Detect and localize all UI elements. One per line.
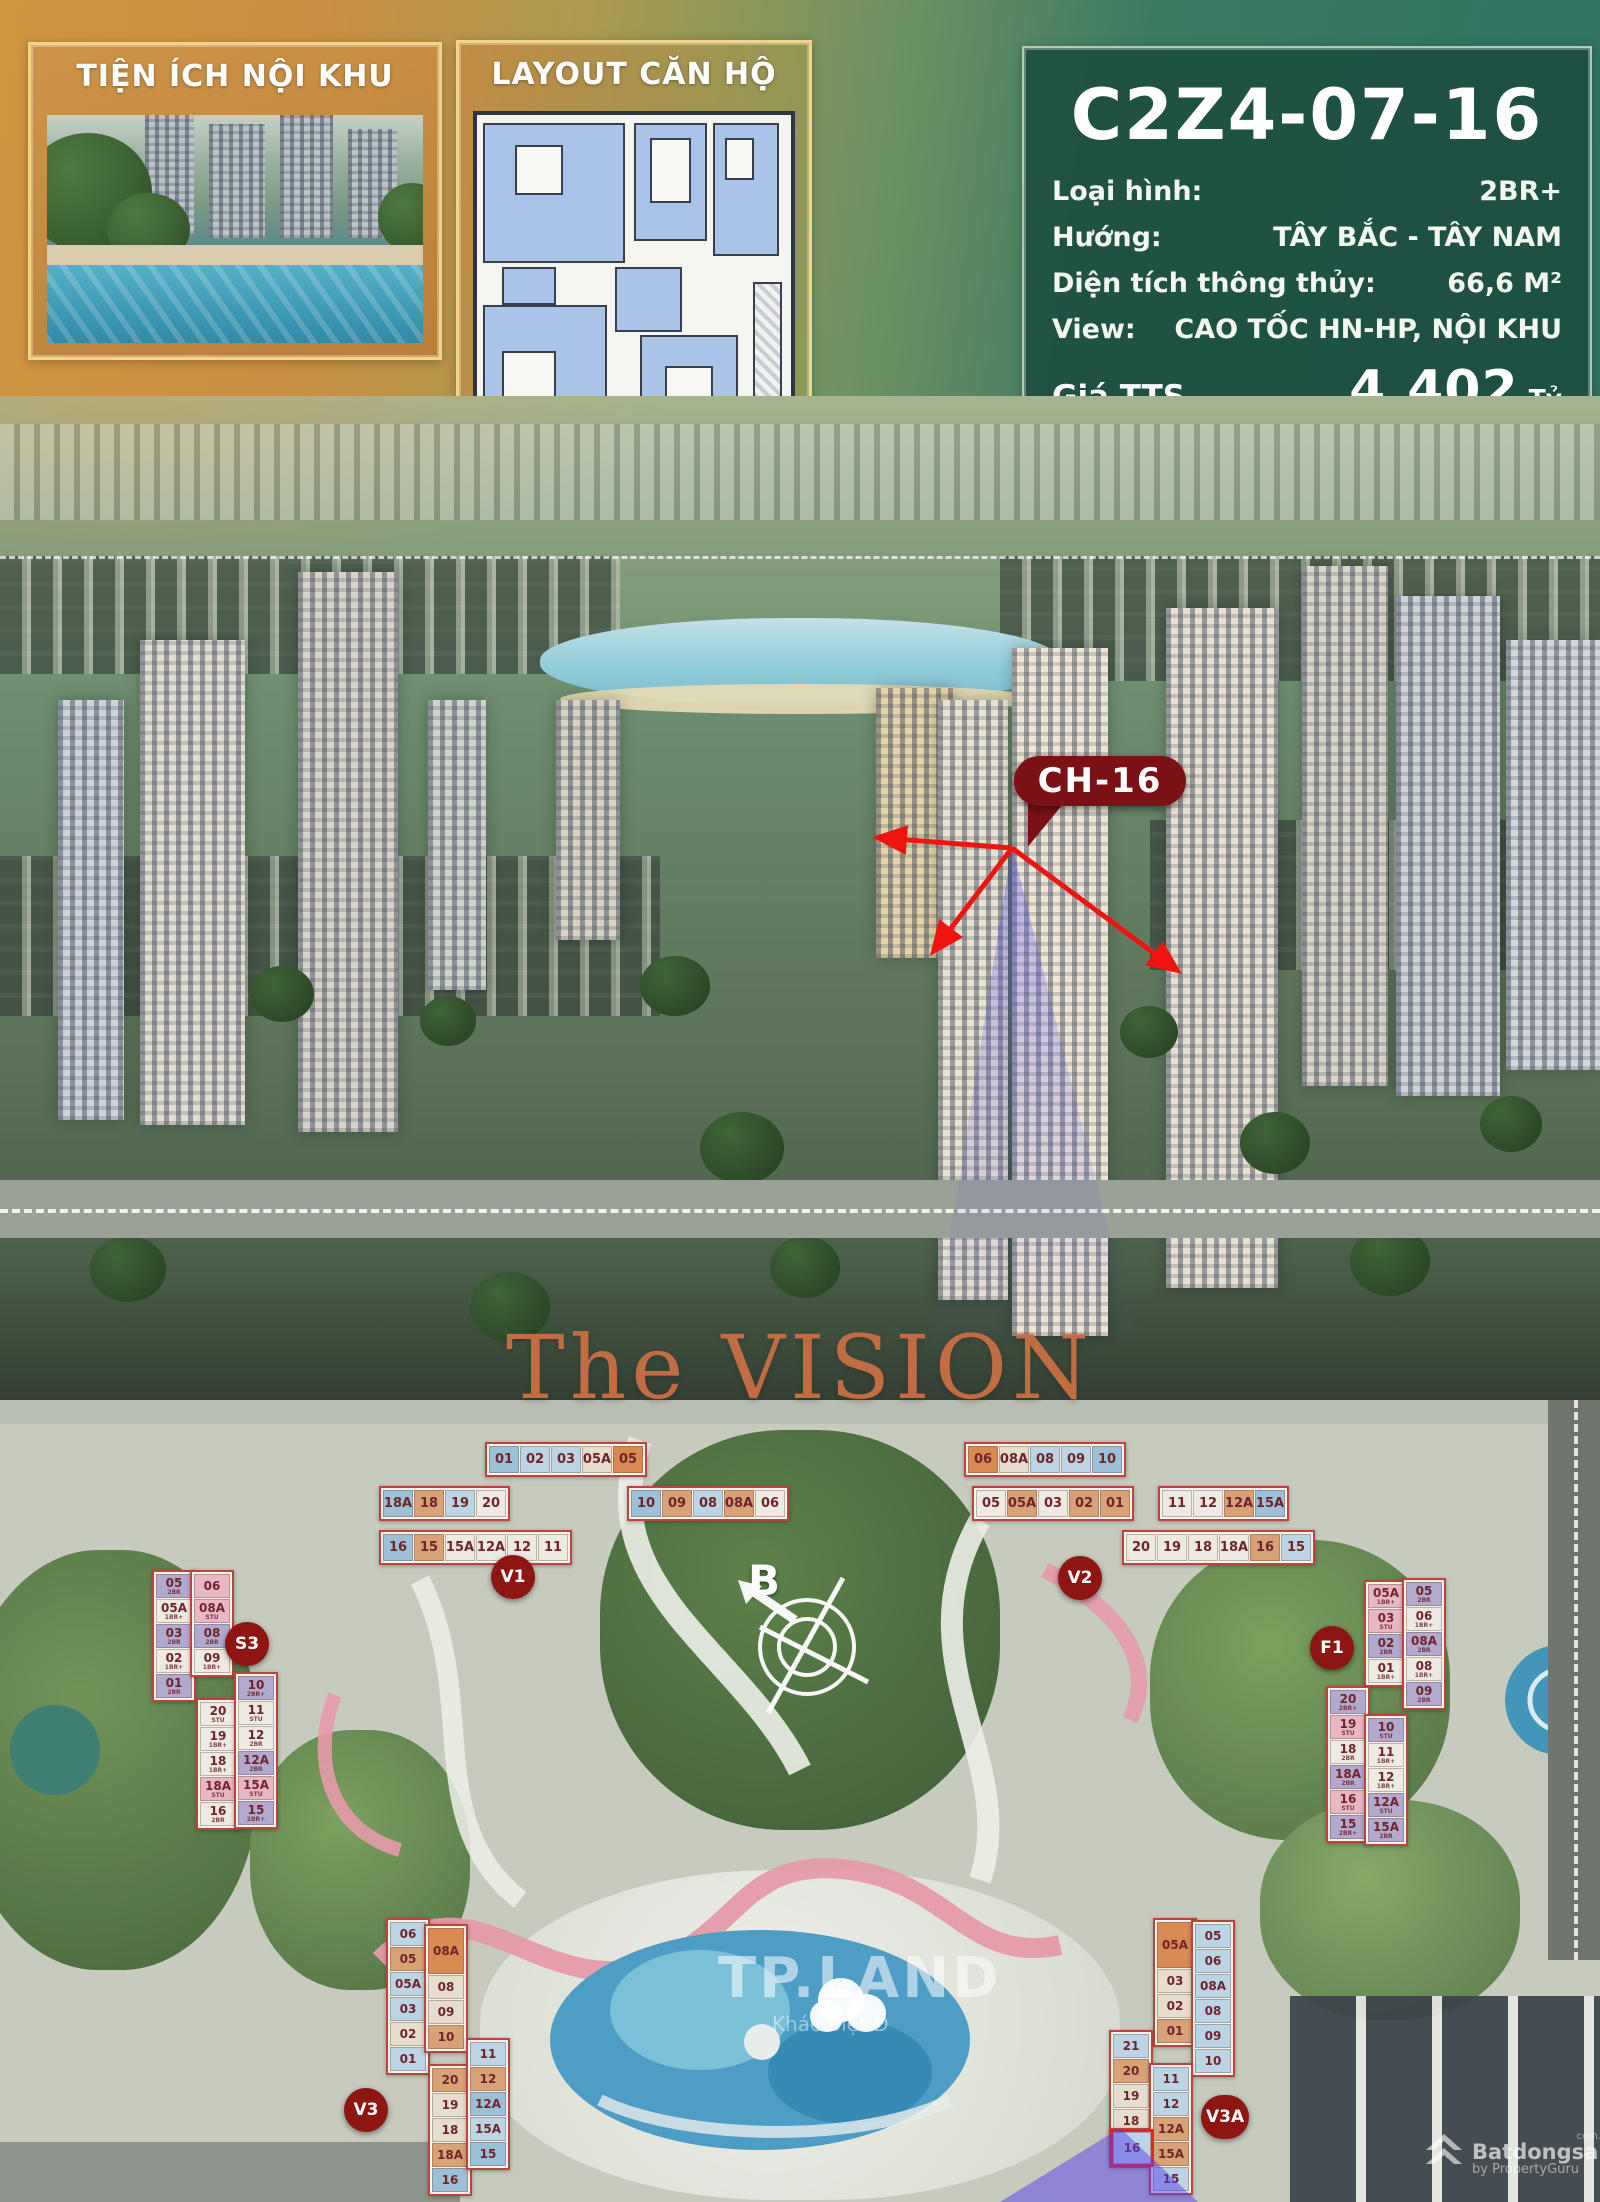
amenities-panel: TIỆN ÍCH NỘI KHU — [28, 42, 442, 360]
unit-cell-V2-08A: 08A — [999, 1446, 1029, 1473]
spec-value: TÂY BẮC - TÂY NAM — [1273, 222, 1562, 253]
photo-tower — [209, 124, 265, 238]
floorplan-bathroom — [615, 267, 682, 332]
unit-cell-S3-02: 021BR+ — [156, 1649, 192, 1673]
brand-name: Batdongsan — [1472, 2141, 1600, 2163]
photo-tower — [280, 115, 333, 238]
unit-cell-V3A-09: 09 — [1195, 2024, 1231, 2048]
building-badge-V3A: V3A — [1201, 2095, 1249, 2139]
unit-cell-S3-15A: 15ASTU — [238, 1776, 274, 1800]
floorplan-stove — [725, 138, 754, 180]
unit-cell-F1-05A: 05A1BR+ — [1368, 1584, 1404, 1608]
unit-cell-V1-02: 02 — [520, 1446, 550, 1473]
building-badge-V3: V3 — [344, 2088, 388, 2132]
brand-byline: by PropertyGuru — [1472, 2163, 1600, 2177]
unit-cell-V1-20: 20 — [476, 1490, 506, 1517]
unit-cell-S3-05: 052BR — [156, 1574, 192, 1598]
unit-cell-F1-19: 19STU — [1330, 1715, 1366, 1739]
project-name-title: The VISION — [0, 1316, 1600, 1419]
unit-cell-S3-10: 102BR+ — [238, 1676, 274, 1700]
building-badge-V2: V2 — [1058, 1556, 1102, 1600]
unit-cell-V3A-15A: 15A — [1153, 2142, 1189, 2166]
unit-block: 111212A15A15 — [466, 2038, 510, 2170]
watermark-tpland-sub: Khác Biệt Đ — [772, 2012, 889, 2036]
unit-cell-V1-05A: 05A — [582, 1446, 612, 1473]
floorplan-bathroom-2 — [502, 267, 556, 305]
unit-cell-S3-09: 091BR+ — [194, 1649, 230, 1673]
brand-watermark: com.vn Batdongsan by PropertyGuru — [1424, 2132, 1600, 2176]
unit-cell-V2-12: 12 — [1193, 1490, 1223, 1517]
unit-cell-V3-08: 08 — [428, 1975, 464, 1999]
unit-cell-V3-15: 15 — [470, 2142, 506, 2166]
unit-cell-V3A-12A: 12A — [1153, 2117, 1189, 2141]
unit-block: 0608A080910 — [964, 1442, 1126, 1477]
unit-block: 102BR+11STU122BR12A2BR15ASTU152BR+ — [234, 1672, 278, 1829]
unit-cell-S3-01: 012BR — [156, 1674, 192, 1698]
unit-cell-V2-02: 02 — [1069, 1490, 1099, 1517]
unit-cell-F1-09: 092BR — [1406, 1682, 1442, 1706]
unit-cell-V1-18A: 18A — [383, 1490, 413, 1517]
spec-value: 66,6 M² — [1447, 268, 1562, 299]
unit-block: 111212A15A15 — [1149, 2063, 1193, 2195]
unit-cell-V2-12A: 12A — [1224, 1490, 1254, 1517]
unit-cell-V3-15A: 15A — [470, 2117, 506, 2141]
unit-cell-V2-15: 15 — [1281, 1534, 1311, 1561]
spec-label: View: — [1052, 314, 1136, 345]
unit-cell-V2-20: 20 — [1126, 1534, 1156, 1561]
bottom-left-road — [0, 2142, 460, 2202]
spec-row-direction: Hướng: TÂY BẮC - TÂY NAM — [1052, 222, 1562, 253]
spec-value: CAO TỐC HN-HP, NỘI KHU — [1174, 314, 1562, 345]
unit-block: 0608ASTU082BR091BR+ — [190, 1570, 234, 1677]
amenities-photo — [47, 115, 423, 343]
unit-cell-V3-18: 18 — [432, 2118, 468, 2142]
spec-label: Diện tích thông thủy: — [1052, 268, 1376, 299]
unit-cell-V1-19: 19 — [445, 1490, 475, 1517]
unit-cell-V1-11: 11 — [538, 1534, 568, 1561]
unit-cell-V2-08: 08 — [1030, 1446, 1060, 1473]
unit-cell-V2-19: 19 — [1157, 1534, 1187, 1561]
unit-cell-V3-18A: 18A — [432, 2143, 468, 2167]
unit-block: 052BR061BR+08A2BR081BR+092BR — [1402, 1578, 1446, 1710]
unit-cell-S3-12A: 12A2BR — [238, 1751, 274, 1775]
unit-cell-V3A-12: 12 — [1153, 2092, 1189, 2116]
unit-cell-S3-12: 122BR — [238, 1726, 274, 1750]
unit-block: 050608A080910 — [1191, 1920, 1235, 2077]
unit-block: 20191818A1615 — [1122, 1530, 1315, 1565]
building-badge-S3: S3 — [225, 1622, 269, 1666]
floorplan-sofa — [515, 145, 563, 195]
unit-cell-F1-05: 052BR — [1406, 1582, 1442, 1606]
unit-cell-V2-01: 01 — [1100, 1490, 1130, 1517]
unit-cell-F1-08: 081BR+ — [1406, 1657, 1442, 1681]
aerial-view: Batdongsan by PropertyGuru — [0, 396, 1600, 1400]
spec-value: 2BR+ — [1479, 176, 1562, 207]
unit-cell-V3-06: 06 — [390, 1922, 426, 1946]
unit-cell-V3-20: 20 — [432, 2068, 468, 2092]
spec-row-view: View: CAO TỐC HN-HP, NỘI KHU — [1052, 314, 1562, 345]
unit-cell-F1-12A: 12ASTU — [1368, 1793, 1404, 1817]
batdongsan-logo-icon — [1424, 2132, 1464, 2176]
listing-poster: TIỆN ÍCH NỘI KHU LAYOUT CĂN HỘ — [0, 0, 1600, 2202]
unit-cell-S3-20: 20STU — [200, 1702, 236, 1726]
unit-block: 08A080910 — [424, 1924, 468, 2053]
unit-cell-V3-02: 02 — [390, 2022, 426, 2046]
unit-cell-V1-08A: 08A — [724, 1490, 754, 1517]
unit-cell-V2-03: 03 — [1038, 1490, 1068, 1517]
unit-cell-F1-15: 152BR+ — [1330, 1815, 1366, 1839]
compass-icon — [700, 1560, 900, 1780]
building-badge-V1: V1 — [491, 1555, 535, 1599]
unit-cell-F1-20: 202BR+ — [1330, 1690, 1366, 1714]
right-road — [1548, 1400, 1600, 1960]
unit-cell-V3-19: 19 — [432, 2093, 468, 2117]
unit-cell-V3A-03: 03 — [1157, 1969, 1193, 1993]
unit-cell-S3-16: 162BR — [200, 1802, 236, 1826]
unit-cell-V3-08A: 08A — [428, 1928, 464, 1974]
unit-cell-V2-16: 16 — [1250, 1534, 1280, 1561]
callout-arrows — [0, 396, 1600, 1400]
unit-block: 18A181920 — [379, 1486, 510, 1521]
unit-cell-V1-08: 08 — [693, 1490, 723, 1517]
unit-cell-V3-05A: 05A — [390, 1972, 426, 1996]
unit-cell-V2-18: 18 — [1188, 1534, 1218, 1561]
watermark-tpland: TP.LAND — [718, 1946, 1002, 2011]
unit-cell-V3-11: 11 — [470, 2042, 506, 2066]
unit-block: 01020305A05 — [485, 1442, 647, 1477]
unit-cell-V1-10: 10 — [631, 1490, 661, 1517]
unit-cell-S3-18A: 18ASTU — [200, 1777, 236, 1801]
unit-cell-V2-15A: 15A — [1255, 1490, 1285, 1517]
unit-callout-bubble: CH-16 — [1014, 756, 1186, 806]
unit-cell-S3-18: 181BR+ — [200, 1752, 236, 1776]
unit-cell-V3A-15: 15 — [1153, 2167, 1189, 2191]
unit-cell-F1-03: 03STU — [1368, 1609, 1404, 1633]
unit-cell-V2-18A: 18A — [1219, 1534, 1249, 1561]
unit-cell-V1-01: 01 — [489, 1446, 519, 1473]
amenities-panel-title: TIỆN ÍCH NỘI KHU — [31, 59, 439, 94]
unit-cell-F1-16: 16STU — [1330, 1790, 1366, 1814]
unit-cell-S3-11: 11STU — [238, 1701, 274, 1725]
unit-cell-V3-03: 03 — [390, 1997, 426, 2021]
unit-block: 111212A15A — [1158, 1486, 1289, 1521]
building-badge-F1: F1 — [1310, 1626, 1354, 1670]
unit-cell-V3A-08A: 08A — [1195, 1974, 1231, 1998]
unit-cell-S3-06: 06 — [194, 1574, 230, 1598]
unit-cell-V3-01: 01 — [390, 2047, 426, 2071]
unit-cell-F1-12: 121BR+ — [1368, 1768, 1404, 1792]
layout-panel-title: LAYOUT CĂN HỘ — [459, 57, 809, 92]
unit-cell-F1-02: 022BR — [1368, 1634, 1404, 1658]
unit-cell-V3-12A: 12A — [470, 2092, 506, 2116]
unit-code: C2Z4-07-16 — [1050, 74, 1564, 156]
spec-label: Hướng: — [1052, 222, 1162, 253]
photo-pool — [47, 265, 423, 343]
unit-cell-V1-05: 05 — [613, 1446, 643, 1473]
unit-block: 10090808A06 — [627, 1486, 789, 1521]
unit-cell-V2-05A: 05A — [1007, 1490, 1037, 1517]
unit-cell-S3-03: 032BR — [156, 1624, 192, 1648]
unit-cell-V2-11: 11 — [1162, 1490, 1192, 1517]
unit-cell-V1-18: 18 — [414, 1490, 444, 1517]
unit-cell-F1-18: 182BR — [1330, 1740, 1366, 1764]
unit-cell-F1-10: 10STU — [1368, 1718, 1404, 1742]
unit-cell-F1-18A: 18A2BR — [1330, 1765, 1366, 1789]
unit-cell-V1-03: 03 — [551, 1446, 581, 1473]
unit-cell-V3-05: 05 — [390, 1947, 426, 1971]
unit-cell-V3-16: 16 — [432, 2168, 468, 2192]
unit-cell-V1-06: 06 — [755, 1490, 785, 1517]
unit-cell-V3A-06: 06 — [1195, 1949, 1231, 1973]
unit-cell-V3-09: 09 — [428, 2000, 464, 2024]
unit-cell-V3A-21: 21 — [1113, 2034, 1149, 2058]
unit-cell-V3A-10: 10 — [1195, 2049, 1231, 2073]
spec-label: Loại hình: — [1052, 176, 1202, 207]
unit-cell-V3A-20: 20 — [1113, 2059, 1149, 2083]
unit-cell-V3-10: 10 — [428, 2025, 464, 2049]
unit-block: 10STU111BR+121BR+12ASTU15A2BR — [1364, 1714, 1408, 1846]
spec-row-area: Diện tích thông thủy: 66,6 M² — [1052, 268, 1562, 299]
unit-cell-V3A-02: 02 — [1157, 1994, 1193, 2018]
unit-cell-V3A-11: 11 — [1153, 2067, 1189, 2091]
unit-cell-S3-15: 152BR+ — [238, 1801, 274, 1825]
unit-cell-F1-01: 011BR+ — [1368, 1659, 1404, 1683]
unit-block: 16 — [1109, 2128, 1155, 2168]
floorplan-table — [650, 138, 692, 203]
unit-cell-V2-10: 10 — [1092, 1446, 1122, 1473]
unit-cell-F1-06: 061BR+ — [1406, 1607, 1442, 1631]
photo-pool-deck — [47, 245, 423, 266]
unit-cell-V3A-16: 16 — [1113, 2132, 1151, 2164]
unit-cell-V2-09: 09 — [1061, 1446, 1091, 1473]
unit-cell-S3-08A: 08ASTU — [194, 1599, 230, 1623]
spec-row-type: Loại hình: 2BR+ — [1052, 176, 1562, 207]
unit-cell-V3A-01: 01 — [1157, 2019, 1193, 2043]
unit-cell-S3-19: 191BR+ — [200, 1727, 236, 1751]
unit-cell-V1-09: 09 — [662, 1490, 692, 1517]
unit-cell-V3A-19: 19 — [1113, 2084, 1149, 2108]
unit-cell-V1-15A: 15A — [445, 1534, 475, 1561]
unit-cell-S3-05A: 05A1BR+ — [156, 1599, 192, 1623]
unit-cell-V1-15: 15 — [414, 1534, 444, 1561]
unit-cell-F1-08A: 08A2BR — [1406, 1632, 1442, 1656]
unit-cell-V2-05: 05 — [976, 1490, 1006, 1517]
unit-cell-V3-12: 12 — [470, 2067, 506, 2091]
unit-cell-V3A-05: 05 — [1195, 1924, 1231, 1948]
unit-cell-V3A-05A: 05A — [1157, 1922, 1193, 1968]
unit-block: 0505A030201 — [972, 1486, 1134, 1521]
unit-cell-F1-11: 111BR+ — [1368, 1743, 1404, 1767]
unit-block: 161515A12A1211 — [379, 1530, 572, 1565]
unit-cell-V1-16: 16 — [383, 1534, 413, 1561]
unit-cell-V3A-08: 08 — [1195, 1999, 1231, 2023]
unit-cell-F1-15A: 15A2BR — [1368, 1818, 1404, 1842]
unit-cell-V2-06: 06 — [968, 1446, 998, 1473]
